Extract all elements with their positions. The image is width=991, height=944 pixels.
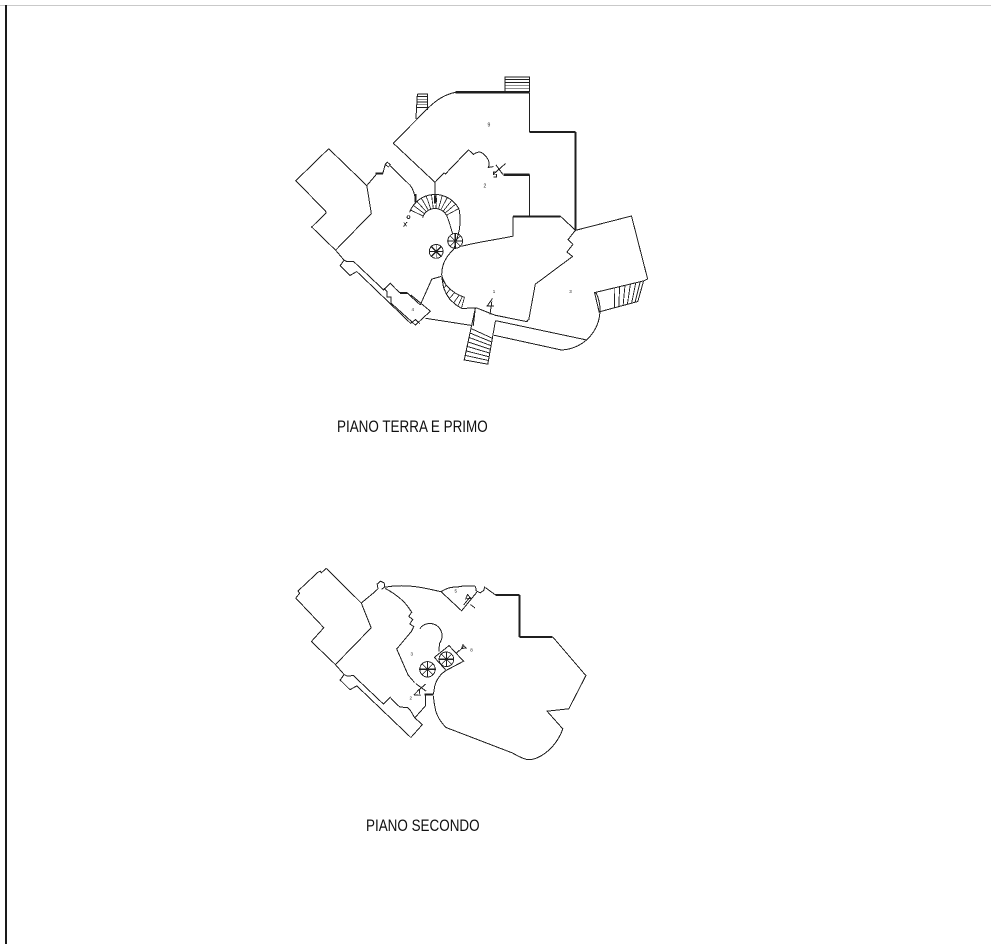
svg-text:2: 2	[410, 696, 413, 701]
svg-text:9: 9	[488, 123, 491, 129]
svg-text:4: 4	[412, 307, 415, 312]
svg-text:1: 1	[493, 289, 496, 294]
svg-text:2: 2	[484, 184, 487, 190]
svg-text:3: 3	[411, 652, 414, 657]
svg-text:3: 3	[569, 289, 572, 294]
svg-text:5: 5	[455, 589, 458, 594]
svg-text:8: 8	[470, 648, 473, 653]
